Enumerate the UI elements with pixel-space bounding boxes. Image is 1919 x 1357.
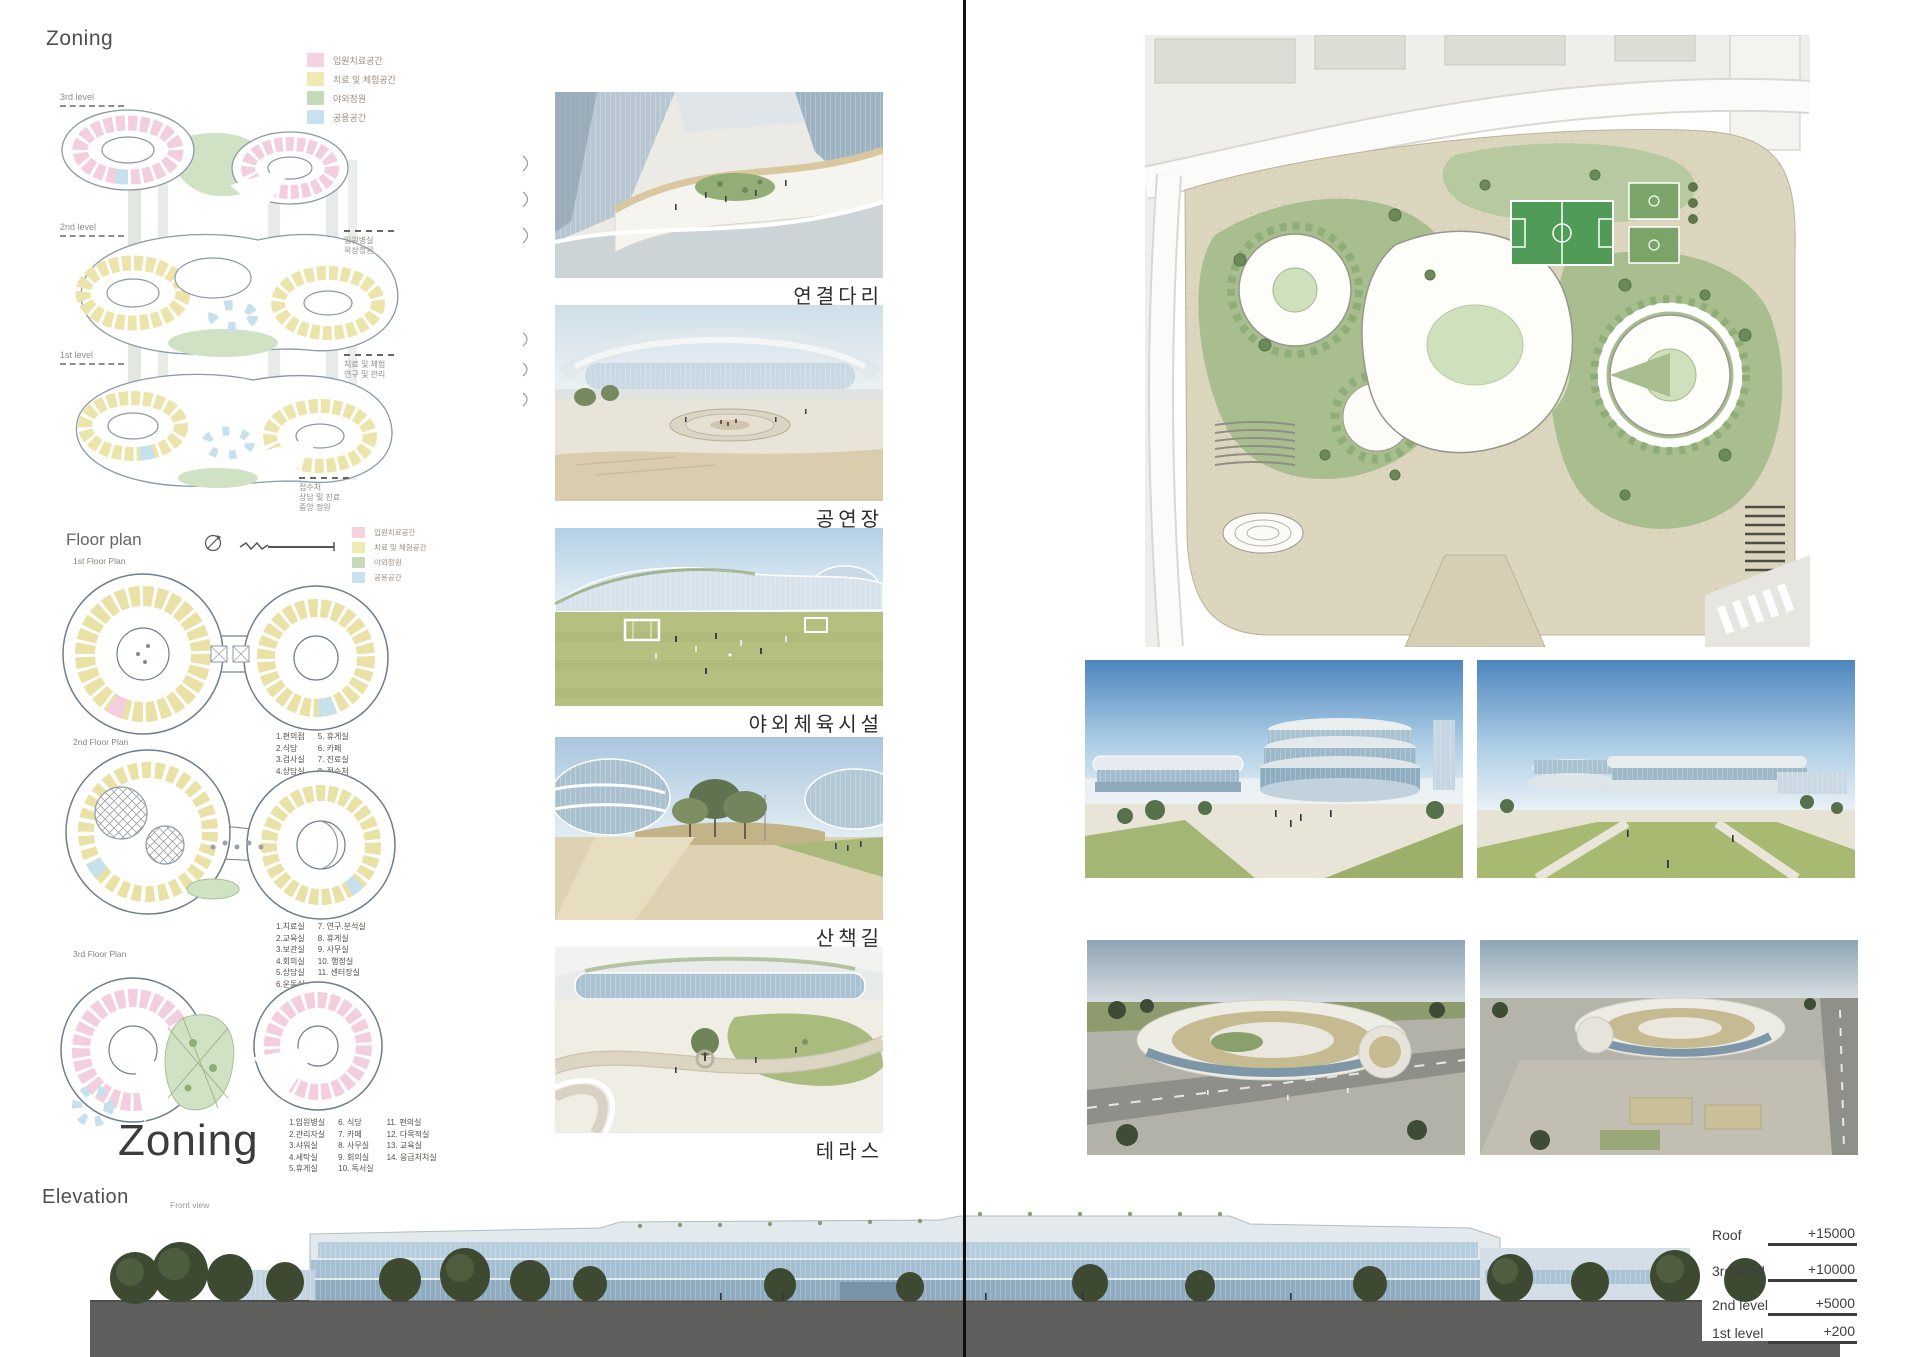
render-performance-hall-image bbox=[555, 305, 883, 501]
caption-terrace: 테라스 bbox=[555, 1135, 883, 1164]
elevation-label-1st: 1st level+200 bbox=[1712, 1325, 1857, 1347]
legend-swatch-pink bbox=[352, 527, 365, 538]
axon-level-3-label: 3rd level bbox=[60, 92, 124, 107]
render-exterior-day-2-image bbox=[1477, 660, 1855, 878]
second-floor-plan-label: 2nd Floor Plan bbox=[73, 737, 128, 747]
render-walking-path-image bbox=[555, 737, 883, 920]
presentation-board: Zoning 입원치료공간 치료 및 체험공간 야외정원 공용공간 bbox=[0, 0, 1919, 1357]
axon-callout-reception: 접수처상담 및 진료중앙 정원 bbox=[299, 477, 349, 513]
axon-level-2-label: 2nd level bbox=[60, 222, 124, 237]
axon-callout-roofgarden: 입원병실옥상정원 bbox=[344, 230, 394, 256]
legend-item: 치료 및 체험공간 bbox=[307, 72, 396, 86]
legend-swatch-pink bbox=[307, 53, 324, 67]
third-floor-plan-drawing bbox=[33, 958, 423, 1126]
elevation-label-3rd: 3rd level+10000 bbox=[1712, 1263, 1857, 1285]
render-sports-field-image bbox=[555, 528, 883, 706]
render-aerial-dusk-2-image bbox=[1480, 940, 1858, 1155]
render-exterior-day-1-image bbox=[1085, 660, 1463, 878]
legend-swatch-yellow bbox=[352, 542, 365, 553]
axon-level-1-label: 1st level bbox=[60, 350, 124, 365]
axon-callout-treatment: 치료 및 체험연구 및 관리 bbox=[344, 354, 394, 380]
north-arrow-icon bbox=[203, 532, 223, 552]
caption-sports-field: 야외체육시설 bbox=[555, 708, 883, 737]
elevation-label-2nd: 2nd level+5000 bbox=[1712, 1297, 1857, 1319]
zoning-axonometric-diagram bbox=[28, 88, 423, 513]
elevation-title: Elevation bbox=[42, 1186, 129, 1209]
margin-annotation-marks bbox=[515, 148, 541, 418]
render-aerial-dusk-1-image bbox=[1087, 940, 1465, 1155]
site-plan-drawing bbox=[1145, 35, 1810, 647]
first-floor-plan-drawing bbox=[33, 566, 413, 738]
panel-divider-line bbox=[963, 0, 966, 1357]
floor-plan-title: Floor plan bbox=[66, 530, 142, 550]
legend-swatch-yellow bbox=[307, 72, 324, 86]
zoning-section-title: Zoning bbox=[46, 27, 113, 51]
third-floor-room-list: 1.입원병실2.관리자실3.샤워실4.세탁실5.휴게실 6. 식당7. 카페8.… bbox=[289, 1117, 437, 1175]
first-floor-plan-label: 1st Floor Plan bbox=[73, 556, 125, 566]
render-bridge-image bbox=[555, 92, 883, 278]
elevation-label-roof: Roof+15000 bbox=[1712, 1227, 1857, 1249]
zoning-large-title: Zoning bbox=[118, 1116, 259, 1166]
render-terrace-image bbox=[555, 947, 883, 1133]
scale-bar-icon bbox=[238, 538, 338, 554]
second-floor-plan-drawing bbox=[33, 747, 413, 922]
legend-item: 입원치료공간 bbox=[307, 53, 396, 67]
